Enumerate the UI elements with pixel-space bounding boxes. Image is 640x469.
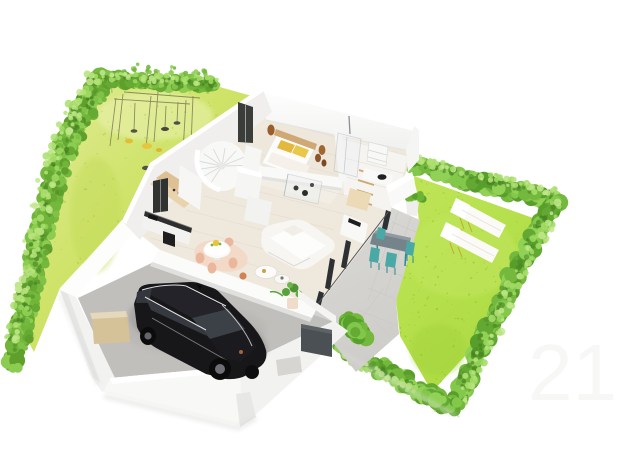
svg-text:21: 21: [528, 328, 617, 417]
